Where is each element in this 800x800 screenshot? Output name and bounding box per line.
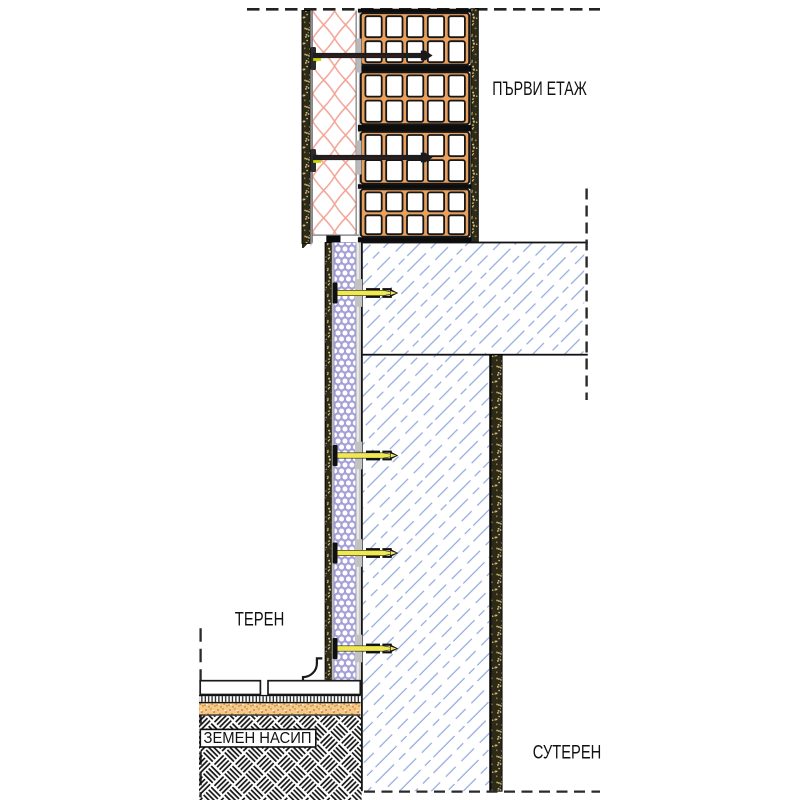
svg-text:ПЪРВИ ЕТАЖ: ПЪРВИ ЕТАЖ [492,79,587,100]
svg-text:ТЕРЕН: ТЕРЕН [235,610,284,631]
svg-text:ЗЕМЕН НАСИП: ЗЕМЕН НАСИП [204,730,312,747]
svg-text:СУТЕРЕН: СУТЕРЕН [533,742,602,763]
